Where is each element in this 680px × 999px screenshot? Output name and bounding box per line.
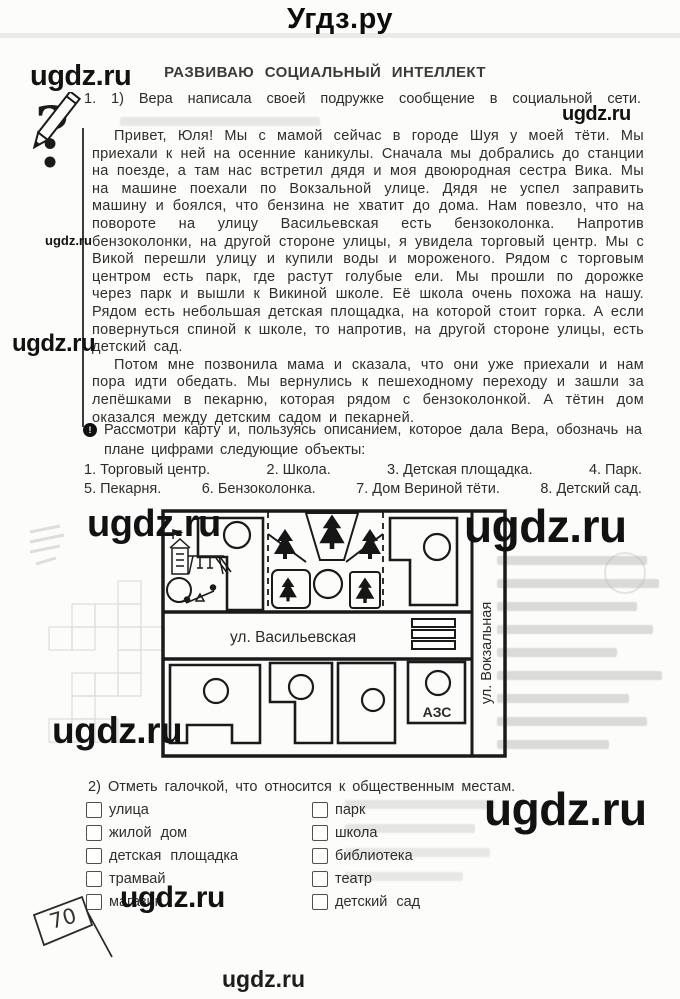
street-label-vasilyevskaya: ул. Васильевская — [230, 629, 356, 646]
task1-text: Вера написала своей подружке сообщение в… — [139, 91, 641, 107]
task-number: 1. — [84, 91, 96, 107]
checkbox-row: жилой дом — [86, 821, 238, 844]
checkbox-row: детская площадка — [86, 844, 238, 867]
ghost-text-bar — [120, 117, 320, 126]
question-pencil-icon: ? — [27, 92, 81, 172]
checkbox-row: парк — [312, 798, 420, 821]
checkbox[interactable] — [86, 871, 102, 887]
map-object-item: 2. Школа. — [267, 461, 331, 480]
checkbox-row: трамвай — [86, 868, 238, 891]
checkbox[interactable] — [312, 894, 328, 910]
site-footer: ugdz.ru — [222, 966, 305, 993]
map-object-item: 3. Детская площадка. — [387, 461, 533, 480]
task2-number: 2) — [88, 779, 101, 795]
watermark: ugdz.ru — [562, 104, 631, 124]
checkbox-row: библиотека — [312, 844, 420, 867]
checkbox-label: трамвай — [109, 871, 165, 887]
checkbox[interactable] — [86, 802, 102, 818]
checkbox-row: школа — [312, 821, 420, 844]
checkbox-label: парк — [335, 802, 365, 818]
building-bottom-3 — [338, 663, 395, 743]
ghost-crossword-grid — [48, 580, 173, 765]
checkbox-label: жилой дом — [109, 825, 187, 841]
map-task-instruction: Рассмотри карту и, пользуясь описанием, … — [104, 421, 642, 460]
message-paragraph-1: Привет, Юля! Мы с мамой сейчас в городе … — [92, 128, 644, 357]
checkbox[interactable] — [312, 825, 328, 841]
checkbox-label: библиотека — [335, 848, 413, 864]
checkbox-label: школа — [335, 825, 377, 841]
task2-text: Отметь галочкой, что относится к обществ… — [108, 779, 515, 795]
site-header: Угдз.ру — [0, 3, 680, 36]
checkbox[interactable] — [86, 848, 102, 864]
checkbox[interactable] — [86, 825, 102, 841]
map-object-item: 6. Бензоколонка. — [202, 480, 316, 499]
checkbox-row: улица — [86, 798, 238, 821]
task1-heading: 1. 1) Вера написала своей подружке сообщ… — [84, 91, 641, 107]
checkbox-label: улица — [109, 802, 149, 818]
map-object-item: 7. Дом Вериной тёти. — [356, 480, 500, 499]
gas-station-label: АЗС — [423, 704, 452, 720]
checkbox[interactable] — [312, 871, 328, 887]
building-top-right — [390, 518, 457, 605]
checkbox-label: детская площадка — [109, 848, 238, 864]
workbook-page: Угдз.ру ugdz.ru ugdz.ru ugdz.ru ugdz.ru … — [0, 0, 680, 999]
ghost-icon — [604, 552, 646, 594]
street-label-vokzalnaya: ул. Вокзальная — [479, 602, 495, 704]
checkbox[interactable] — [312, 848, 328, 864]
building-top-left — [198, 518, 263, 610]
checkbox-row: детский сад — [312, 891, 420, 914]
ghost-hatch — [26, 522, 74, 574]
park-circle — [314, 570, 342, 598]
map-object-item: 4. Парк. — [589, 461, 642, 480]
checkbox-column-right: паркшколабиблиотекатеатрдетский сад — [312, 798, 420, 914]
map-objects-row: 1. Торговый центр.2. Школа.3. Детская пл… — [84, 461, 642, 480]
checkbox-label: детский сад — [335, 894, 420, 910]
checkbox[interactable] — [312, 802, 328, 818]
lesson-title: РАЗВИВАЮ СОЦИАЛЬНЫЙ ИНТЕЛЛЕКТ — [85, 64, 565, 81]
checkbox-row: театр — [312, 868, 420, 891]
map-object-item: 5. Пекарня. — [84, 480, 161, 499]
task-bullet-icon: ! — [83, 423, 97, 437]
message-quote: Привет, Юля! Мы с мамой сейчас в городе … — [82, 128, 644, 427]
checkbox-label: театр — [335, 871, 372, 887]
map-object-item: 8. Детский сад. — [540, 480, 642, 499]
map-object-item: 1. Торговый центр. — [84, 461, 210, 480]
pedestrian-crossing — [412, 619, 455, 649]
map-objects-list: 1. Торговый центр.2. Школа.3. Детская пл… — [84, 461, 642, 498]
task-part: 1) — [111, 91, 124, 107]
park-trees — [274, 514, 381, 603]
message-paragraph-2: Потом мне позвонила мама и сказала, что … — [92, 357, 644, 427]
page-number-flag: 70 — [26, 893, 118, 967]
town-map-plan: ул. Васильевская ул. Вокзальная АЗС — [160, 508, 510, 760]
map-objects-row: 5. Пекарня.6. Бензоколонка.7. Дом Верино… — [84, 480, 642, 499]
task2-heading: 2) Отметь галочкой, что относится к обще… — [88, 779, 515, 795]
